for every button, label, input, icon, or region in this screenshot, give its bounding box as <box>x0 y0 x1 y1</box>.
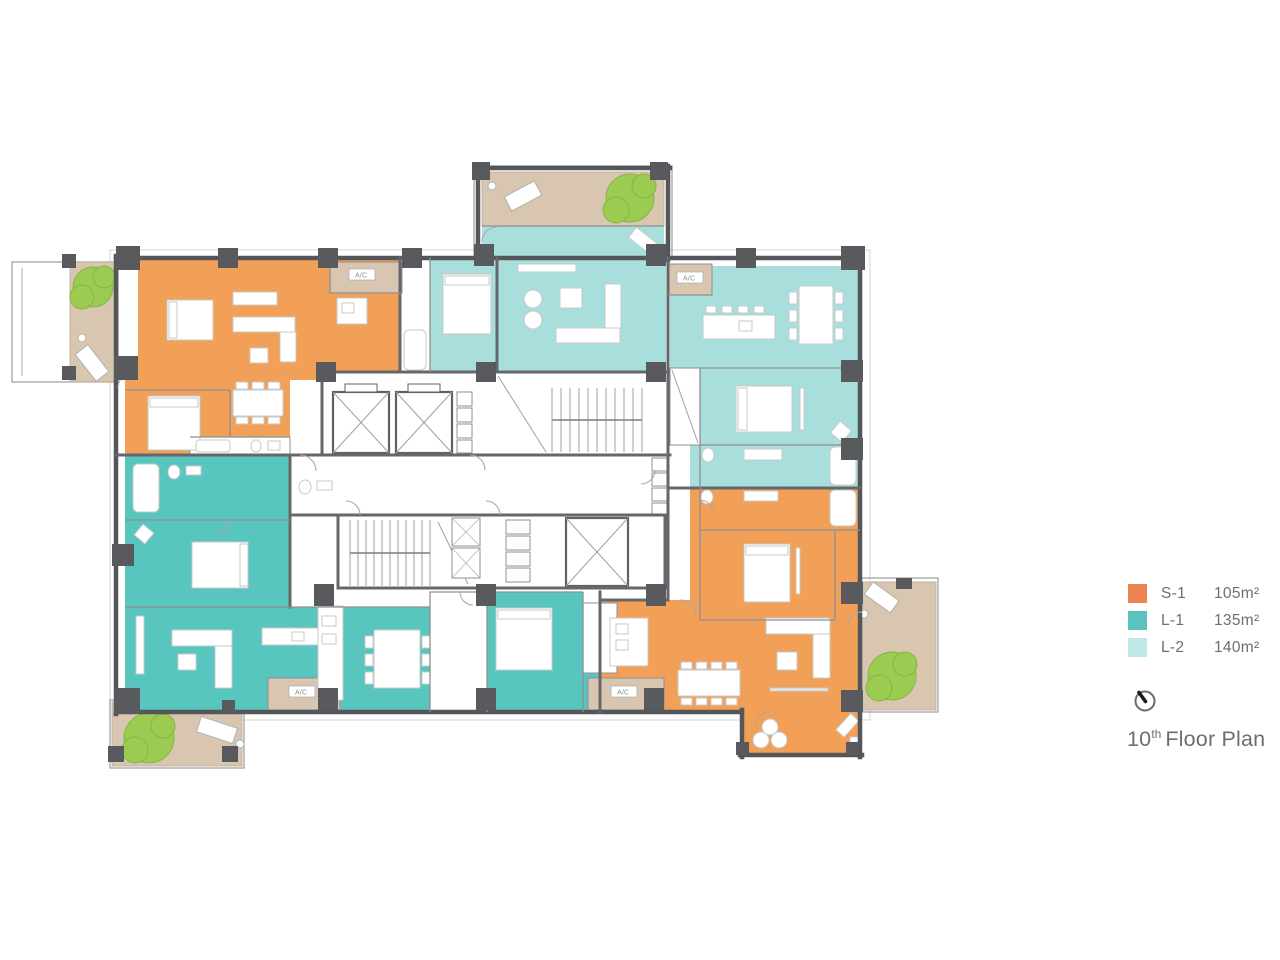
stairs-upper <box>498 376 642 452</box>
legend-code: L-1 <box>1161 612 1184 630</box>
legend-area: 105m² <box>1214 585 1259 603</box>
floor-plan-page: A/C A/C A/C A/C <box>0 0 1280 960</box>
ac-label: A/C <box>683 276 695 283</box>
page-title: 10thFloor Plan <box>1127 727 1265 752</box>
legend: S-1 105m² L-1 135m² L-2 140m² <box>1128 584 1280 666</box>
floor-plan-drawing: A/C A/C A/C A/C <box>0 0 1280 960</box>
stairs-lower <box>350 520 468 586</box>
legend-row-s1: S-1 105m² <box>1128 584 1280 604</box>
legend-row-l2: L-2 140m² <box>1128 638 1280 658</box>
ac-label: A/C <box>355 273 367 280</box>
title-number: 10 <box>1127 727 1151 751</box>
legend-code: L-2 <box>1161 639 1184 657</box>
legend-swatch-s1 <box>1128 584 1147 603</box>
ac-label: A/C <box>617 690 629 697</box>
legend-area: 140m² <box>1214 639 1259 657</box>
legend-area: 135m² <box>1214 612 1259 630</box>
north-arrow-icon <box>1132 688 1158 714</box>
legend-swatch-l2 <box>1128 638 1147 657</box>
title-text: Floor Plan <box>1165 727 1265 751</box>
ac-label: A/C <box>295 690 307 697</box>
title-ordinal-suffix: th <box>1151 727 1161 741</box>
legend-row-l1: L-1 135m² <box>1128 611 1280 631</box>
legend-code: S-1 <box>1161 585 1186 603</box>
legend-swatch-l1 <box>1128 611 1147 630</box>
